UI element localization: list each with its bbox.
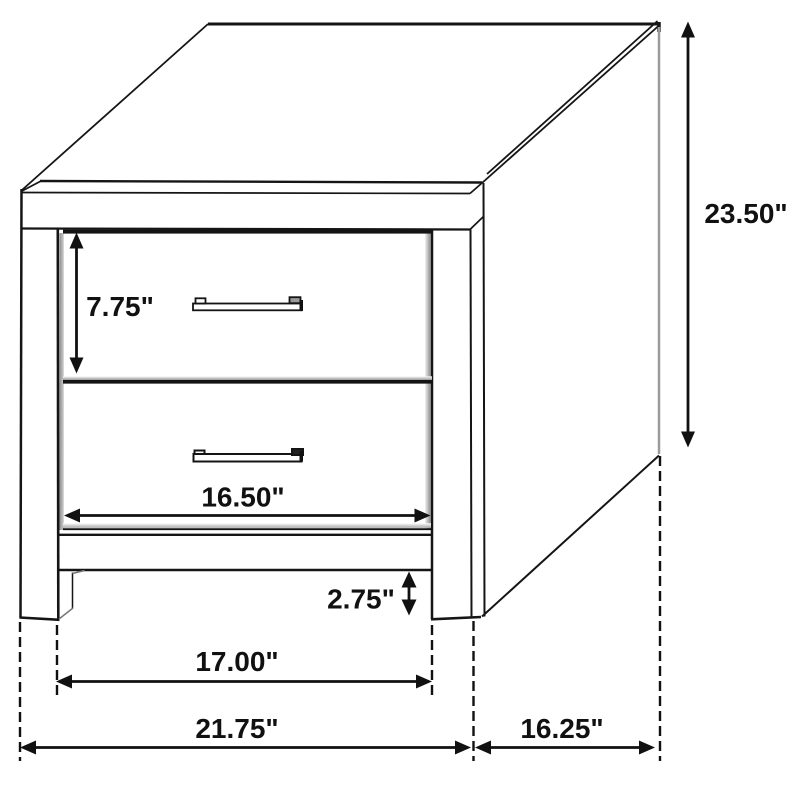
svg-text:7.75": 7.75" — [86, 291, 154, 322]
svg-text:16.50": 16.50" — [201, 482, 284, 513]
svg-text:17.00": 17.00" — [195, 646, 278, 677]
svg-text:21.75": 21.75" — [195, 713, 278, 744]
svg-text:23.50": 23.50" — [704, 198, 787, 229]
svg-text:16.25": 16.25" — [520, 713, 603, 744]
svg-text:2.75": 2.75" — [327, 584, 395, 615]
